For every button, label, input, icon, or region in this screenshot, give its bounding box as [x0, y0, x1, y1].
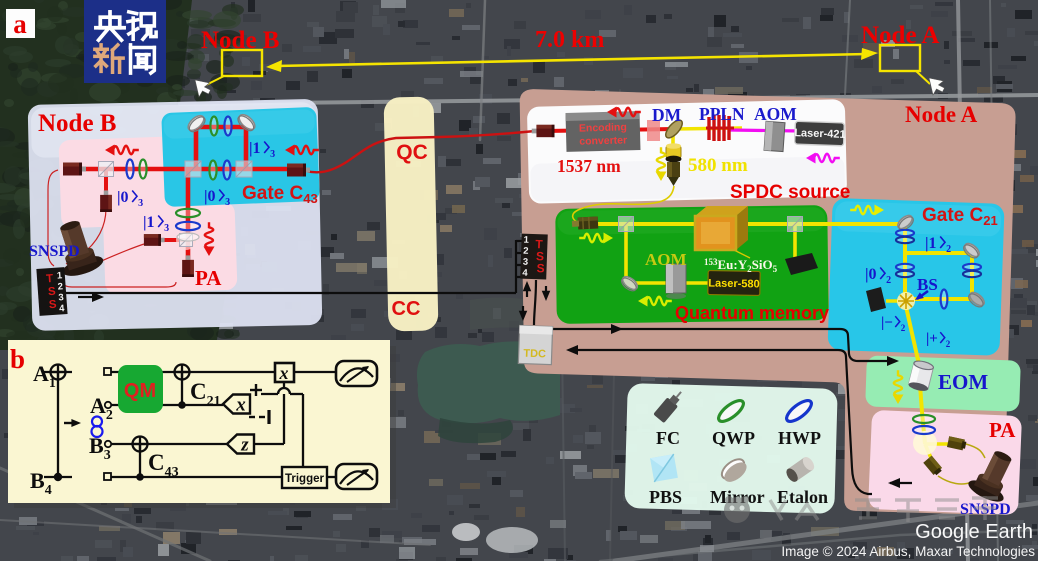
svg-text:a: a	[13, 9, 27, 39]
svg-text:|+: |+	[926, 331, 938, 347]
svg-text:7.0 km: 7.0 km	[535, 27, 604, 53]
svg-text:|1: |1	[143, 214, 155, 231]
svg-text:3: 3	[138, 198, 143, 209]
svg-text:S: S	[536, 261, 544, 275]
svg-text:PA: PA	[195, 266, 222, 290]
svg-text:3: 3	[225, 197, 230, 208]
svg-text:S: S	[48, 286, 57, 299]
svg-text:|0: |0	[865, 266, 877, 283]
svg-text:FC: FC	[656, 428, 680, 448]
svg-text:SPDC source: SPDC source	[730, 182, 850, 203]
svg-text:Quantum memory: Quantum memory	[675, 303, 829, 323]
svg-text:|0: |0	[204, 188, 216, 205]
svg-text:|−: |−	[881, 315, 893, 331]
svg-text:z: z	[240, 435, 249, 456]
svg-text:3: 3	[270, 149, 275, 160]
svg-text:QC: QC	[396, 141, 428, 164]
svg-text:QWP: QWP	[712, 428, 755, 448]
svg-text:AOM: AOM	[754, 104, 797, 124]
svg-text:|1: |1	[249, 140, 261, 157]
svg-text:Laser-421: Laser-421	[794, 127, 846, 141]
svg-text:2: 2	[901, 323, 906, 333]
svg-text:Laser-580: Laser-580	[708, 278, 760, 291]
svg-text:SNSPD: SNSPD	[29, 243, 80, 260]
svg-text:1537 nm: 1537 nm	[557, 156, 621, 176]
svg-text:x: x	[235, 395, 246, 416]
svg-text:3: 3	[523, 257, 529, 268]
svg-text:Trigger: Trigger	[285, 473, 325, 485]
svg-text:HWP: HWP	[778, 428, 821, 448]
svg-text:AOM: AOM	[645, 250, 687, 269]
svg-text:|0: |0	[117, 189, 129, 206]
svg-text:580 nm: 580 nm	[688, 155, 748, 176]
svg-text:CC: CC	[392, 298, 421, 320]
svg-text:Image © 2024 Airbus, Maxar Tec: Image © 2024 Airbus, Maxar Technologies	[781, 544, 1035, 559]
svg-text:x: x	[279, 363, 289, 383]
svg-text:TDC: TDC	[523, 348, 546, 361]
svg-text:EOM: EOM	[938, 370, 988, 394]
svg-text:2: 2	[946, 339, 951, 349]
svg-text:3: 3	[164, 223, 169, 234]
svg-text:Node B: Node B	[38, 110, 116, 137]
svg-text:PPLN: PPLN	[699, 104, 745, 124]
svg-text:2: 2	[523, 246, 529, 257]
svg-text:converter: converter	[579, 134, 627, 147]
svg-text:b: b	[10, 344, 25, 374]
svg-text:2: 2	[886, 275, 891, 286]
svg-text:PBS: PBS	[649, 487, 682, 507]
svg-text:|1: |1	[925, 235, 937, 252]
svg-text:T: T	[46, 273, 54, 285]
svg-text:2: 2	[57, 281, 63, 292]
svg-text:Google Earth: Google Earth	[915, 521, 1033, 543]
svg-text:Node A: Node A	[905, 102, 978, 127]
svg-text:S: S	[48, 299, 57, 312]
svg-text:3: 3	[58, 292, 64, 303]
svg-text:Encoding: Encoding	[579, 121, 627, 134]
svg-text:2: 2	[946, 244, 951, 255]
svg-text:QM: QM	[124, 380, 156, 402]
svg-text:DM: DM	[652, 105, 682, 125]
svg-text:PA: PA	[989, 418, 1016, 442]
